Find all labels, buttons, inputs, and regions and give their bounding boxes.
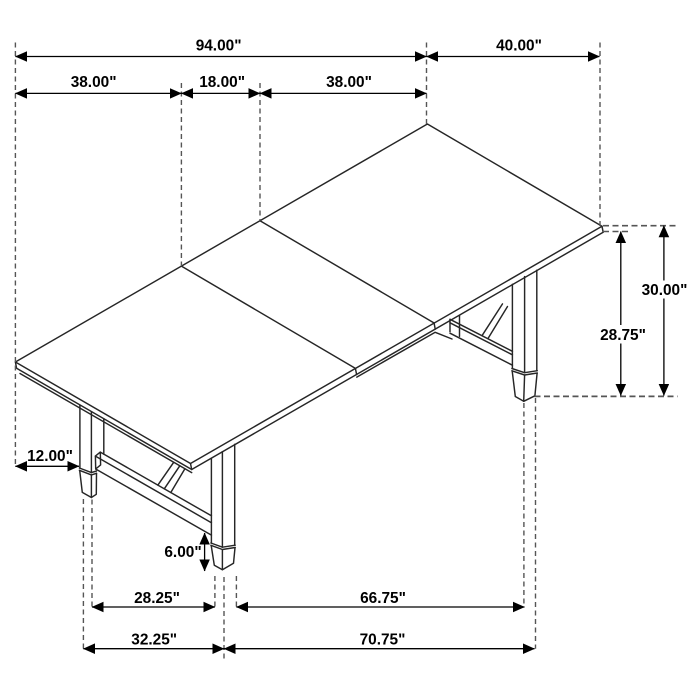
svg-text:12.00": 12.00" [27, 448, 73, 465]
svg-text:18.00": 18.00" [199, 74, 245, 91]
svg-text:6.00": 6.00" [164, 544, 201, 561]
svg-text:38.00": 38.00" [326, 74, 372, 91]
svg-text:30.00": 30.00" [642, 282, 688, 299]
svg-text:40.00": 40.00" [496, 38, 542, 55]
svg-text:28.75": 28.75" [600, 327, 646, 344]
svg-text:38.00": 38.00" [71, 74, 117, 91]
svg-text:70.75": 70.75" [360, 631, 406, 648]
svg-text:94.00": 94.00" [196, 38, 242, 55]
svg-text:66.75": 66.75" [360, 590, 406, 607]
svg-text:32.25": 32.25" [131, 631, 177, 648]
svg-text:28.25": 28.25" [134, 590, 180, 607]
